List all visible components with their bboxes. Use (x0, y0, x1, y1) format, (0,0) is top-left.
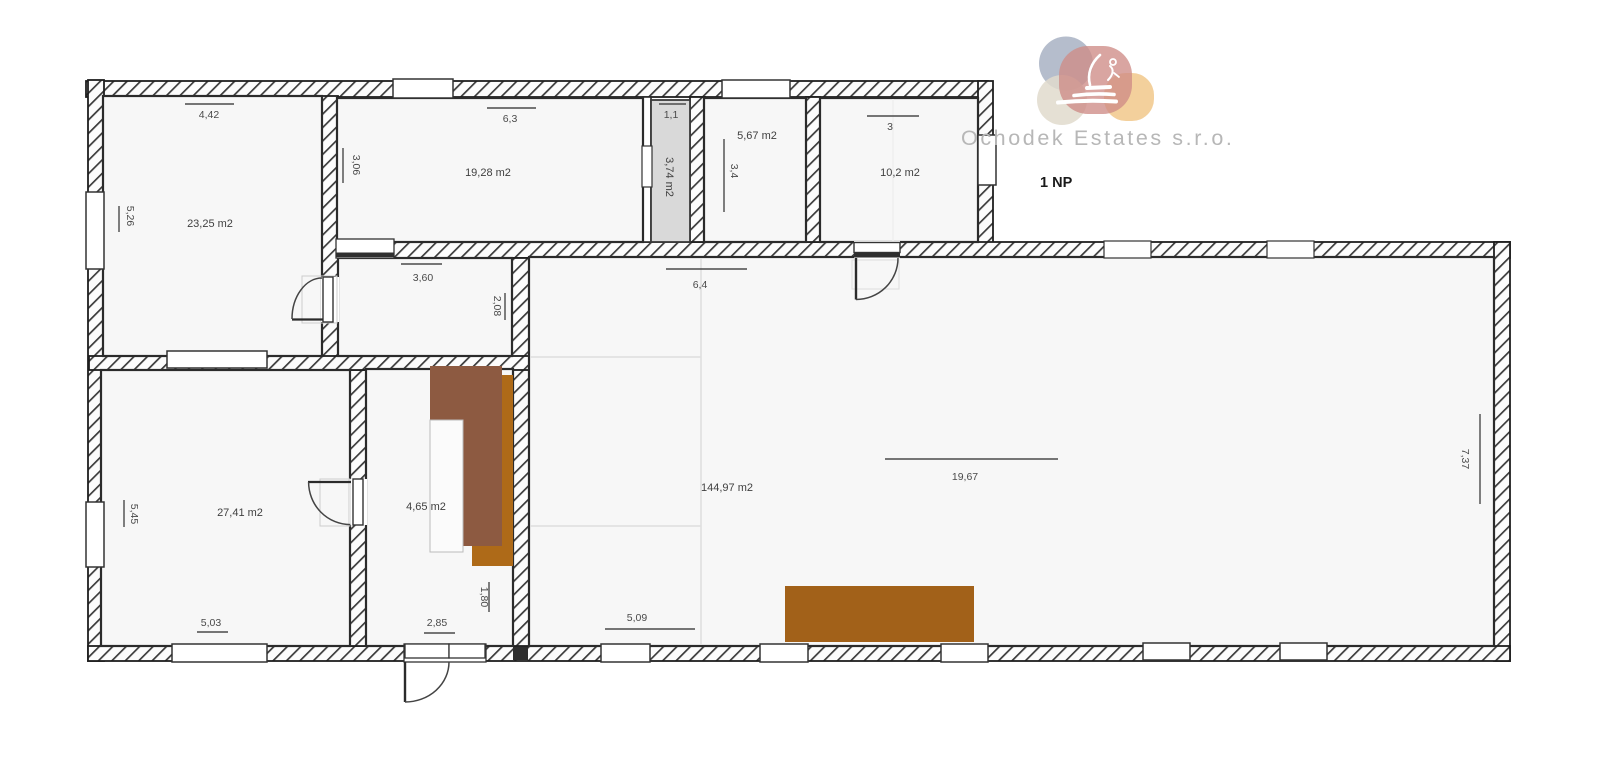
svg-text:6,3: 6,3 (503, 113, 518, 125)
svg-text:23,25 m2: 23,25 m2 (187, 218, 233, 230)
svg-text:3: 3 (887, 121, 893, 133)
svg-text:144,97 m2: 144,97 m2 (701, 482, 753, 494)
svg-text:3,74 m2: 3,74 m2 (663, 157, 675, 197)
svg-text:27,41 m2: 27,41 m2 (217, 507, 263, 519)
svg-text:4,65 m2: 4,65 m2 (406, 501, 446, 513)
svg-text:1,80: 1,80 (478, 587, 490, 608)
svg-text:2,08: 2,08 (491, 296, 503, 317)
svg-text:10,2 m2: 10,2 m2 (880, 167, 920, 179)
svg-text:7,37: 7,37 (1459, 449, 1471, 470)
svg-text:5,26: 5,26 (124, 206, 136, 227)
svg-text:4,42: 4,42 (199, 109, 220, 121)
svg-text:5,45: 5,45 (128, 504, 140, 525)
svg-text:5,67 m2: 5,67 m2 (737, 130, 777, 142)
svg-text:1 NP: 1 NP (1040, 175, 1073, 191)
svg-text:6,4: 6,4 (693, 279, 708, 291)
svg-text:2,85: 2,85 (427, 617, 448, 629)
svg-text:3,4: 3,4 (728, 164, 740, 179)
svg-text:3,60: 3,60 (413, 272, 434, 284)
svg-text:3,06: 3,06 (350, 155, 362, 176)
svg-text:5,09: 5,09 (627, 612, 648, 624)
svg-text:1,1: 1,1 (664, 109, 679, 121)
svg-text:Ochodek Estates s.r.o.: Ochodek Estates s.r.o. (961, 126, 1235, 150)
svg-text:5,03: 5,03 (201, 617, 222, 629)
svg-text:19,28 m2: 19,28 m2 (465, 167, 511, 179)
svg-text:19,67: 19,67 (952, 471, 978, 483)
